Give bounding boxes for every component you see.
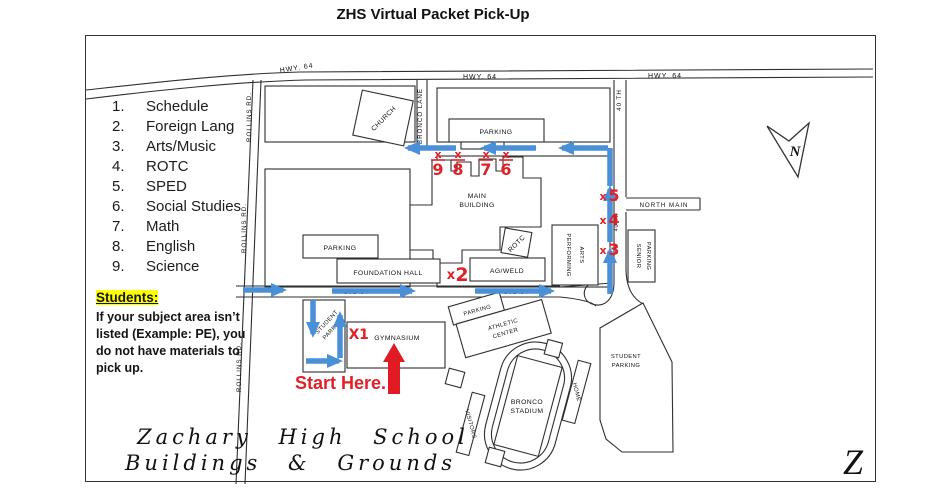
marker-3-num: 3 [608, 240, 619, 259]
legend-item-label: English [146, 238, 195, 255]
marker-8-num: 8 [452, 160, 463, 179]
legend-item-label: Arts/Music [146, 138, 216, 155]
rotc-building: ROTC [501, 228, 532, 257]
ag-weld-building: AG/WELD [470, 258, 545, 281]
performing-arts-building: PERFORMING ARTS [552, 225, 598, 285]
legend-item-num: 6. [112, 198, 136, 215]
legend-item-num: 2. [112, 118, 136, 135]
students-note-line: listed (Example: PE), you [96, 326, 268, 343]
students-note-line: If your subject area isn’t [96, 309, 268, 326]
legend-item: 5.SPED [112, 176, 241, 196]
legend-item: 9.Science [112, 256, 241, 276]
marker-6-num: 6 [500, 160, 511, 179]
fortieth-st-label: 40 TH [616, 89, 623, 111]
legend-item: 4.ROTC [112, 156, 241, 176]
west-parking: PARKING [303, 235, 378, 258]
performing-arts-label-1: PERFORMING [565, 233, 571, 276]
legend-item-num: 5. [112, 178, 136, 195]
north-parking-label: PARKING [480, 129, 513, 136]
marker-4-x: x [599, 214, 606, 227]
legend-item: 8.English [112, 236, 241, 256]
map-footer-title: Zachary High School Buildings & Grounds [125, 424, 469, 476]
map-footer-line2: Buildings & Grounds [125, 450, 469, 476]
legend-item-num: 7. [112, 218, 136, 235]
legend-item: 1.Schedule [112, 96, 241, 116]
marker-3-x: x [599, 244, 606, 257]
marker-1-num: 1 [359, 327, 369, 343]
legend-item-label: Foreign Lang [146, 118, 234, 135]
marker-2-num: 2 [455, 264, 468, 286]
map-footer-line1: Zachary High School [125, 424, 469, 450]
students-note-line: pick up. [96, 360, 268, 377]
rollins-rd-label-2: ROLLINS RD. [241, 203, 248, 253]
west-parking-label: PARKING [324, 245, 357, 252]
legend-item-label: Math [146, 218, 179, 235]
students-note-body: If your subject area isn’t listed (Examp… [96, 309, 268, 377]
main-building-label-1: MAIN [468, 193, 487, 200]
marker-4-num: 4 [608, 210, 619, 229]
marker-5-num: 5 [608, 186, 619, 205]
senior-parking-label-2: PARKING [645, 242, 651, 271]
corner-z-mark: Z [843, 442, 864, 482]
main-building-label-2: BUILDING [459, 202, 494, 209]
north-parking: PARKING [449, 119, 544, 149]
bronco-stadium-label-1: BRONCO [511, 399, 543, 406]
legend-item: 7.Math [112, 216, 241, 236]
students-note-line: do not have materials to [96, 343, 268, 360]
marker-5-x: x [599, 190, 606, 203]
student-parking-big-label-1: STUDENT [611, 354, 641, 360]
legend-item-label: Social Studies [146, 198, 241, 215]
legend-item-label: ROTC [146, 158, 189, 175]
legend-item: 6.Social Studies [112, 196, 241, 216]
compass-arrow-icon [767, 123, 809, 177]
hwy64-label-1: HWY. 64 [279, 62, 314, 74]
subject-legend: 1.Schedule 2.Foreign Lang 3.Arts/Music 4… [112, 96, 241, 276]
ag-weld-label: AG/WELD [490, 268, 524, 275]
students-note: Students: If your subject area isn’t lis… [96, 289, 268, 377]
legend-item-label: Schedule [146, 98, 209, 115]
marker-1-x: X [349, 327, 360, 343]
legend-item: 2.Foreign Lang [112, 116, 241, 136]
student-parking-big: STUDENT PARKING [600, 303, 673, 452]
student-parking-big-label-2: PARKING [612, 363, 641, 369]
gymnasium-label: GYMNASIUM [374, 335, 420, 342]
legend-item: 3.Arts/Music [112, 136, 241, 156]
legend-item-num: 9. [112, 258, 136, 275]
marker-9-num: 9 [432, 160, 443, 179]
legend-item-label: Science [146, 258, 199, 275]
legend-item-label: SPED [146, 178, 187, 195]
legend-item-num: 4. [112, 158, 136, 175]
performing-arts-label-2: ARTS [578, 247, 584, 264]
marker-7-num: 7 [480, 160, 491, 179]
rollins-rd-label-1: ROLLINS RD. [246, 92, 253, 142]
church-building: CHURCH [353, 90, 413, 146]
bronco-stadium-label-2: STADIUM [511, 408, 544, 415]
compass: N [767, 123, 809, 177]
start-here-label: Start Here. [295, 373, 386, 394]
senior-parking: SENIOR PARKING [628, 230, 655, 282]
bronco-lane-label: BRONCO LANE [417, 88, 424, 144]
legend-item-num: 8. [112, 238, 136, 255]
north-main-label: NORTH MAIN [639, 202, 688, 209]
legend-item-num: 1. [112, 98, 136, 115]
hwy64-label-3: HWY. 64 [648, 73, 682, 80]
compass-n-label: N [789, 144, 802, 160]
hwy64-label-2: HWY. 64 [463, 74, 497, 81]
foundation-hall: FOUNDATION HALL [337, 259, 440, 283]
students-note-heading: Students: [96, 290, 158, 305]
legend-item-num: 3. [112, 138, 136, 155]
screenshot-canvas: ZHS Virtual Packet Pick-Up H [0, 0, 940, 491]
senior-parking-label-1: SENIOR [635, 244, 641, 269]
foundation-hall-label: FOUNDATION HALL [353, 270, 422, 277]
